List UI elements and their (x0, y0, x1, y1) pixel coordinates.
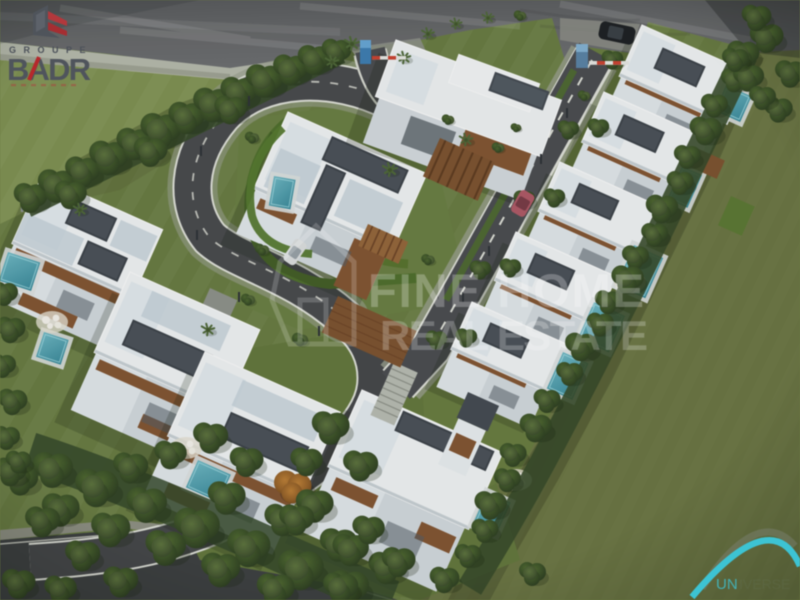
svg-text:FINE HOME: FINE HOME (368, 264, 644, 317)
svg-text:BADR: BADR (7, 52, 91, 87)
svg-text:REAL ESTATE: REAL ESTATE (380, 312, 648, 359)
svg-text:UN: UN (716, 576, 738, 593)
svg-text:IVERSE: IVERSE (739, 576, 790, 592)
